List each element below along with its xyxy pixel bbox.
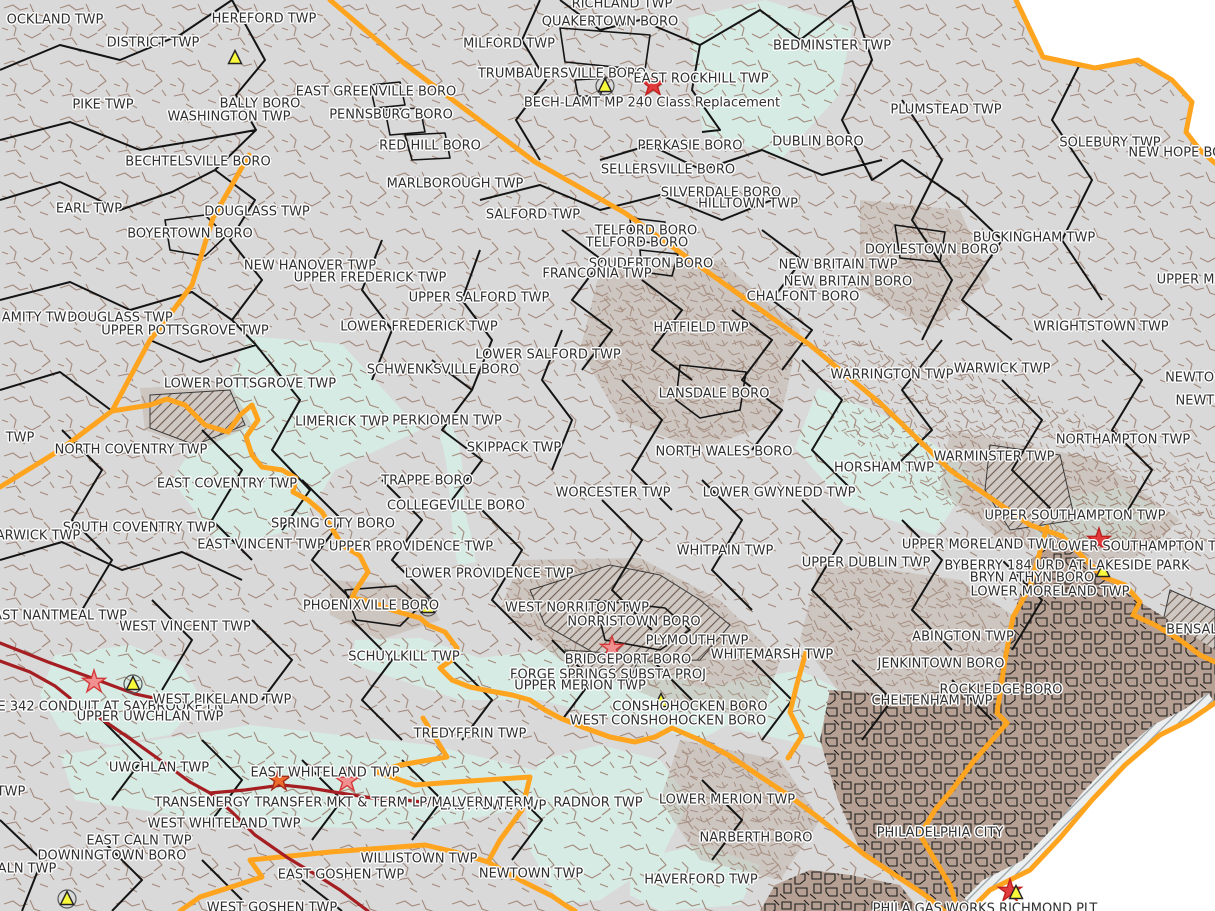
basemap-layer: [0, 0, 1215, 911]
map-canvas[interactable]: OCKLAND TWPDISTRICT TWPHEREFORD TWPRICHL…: [0, 0, 1215, 911]
